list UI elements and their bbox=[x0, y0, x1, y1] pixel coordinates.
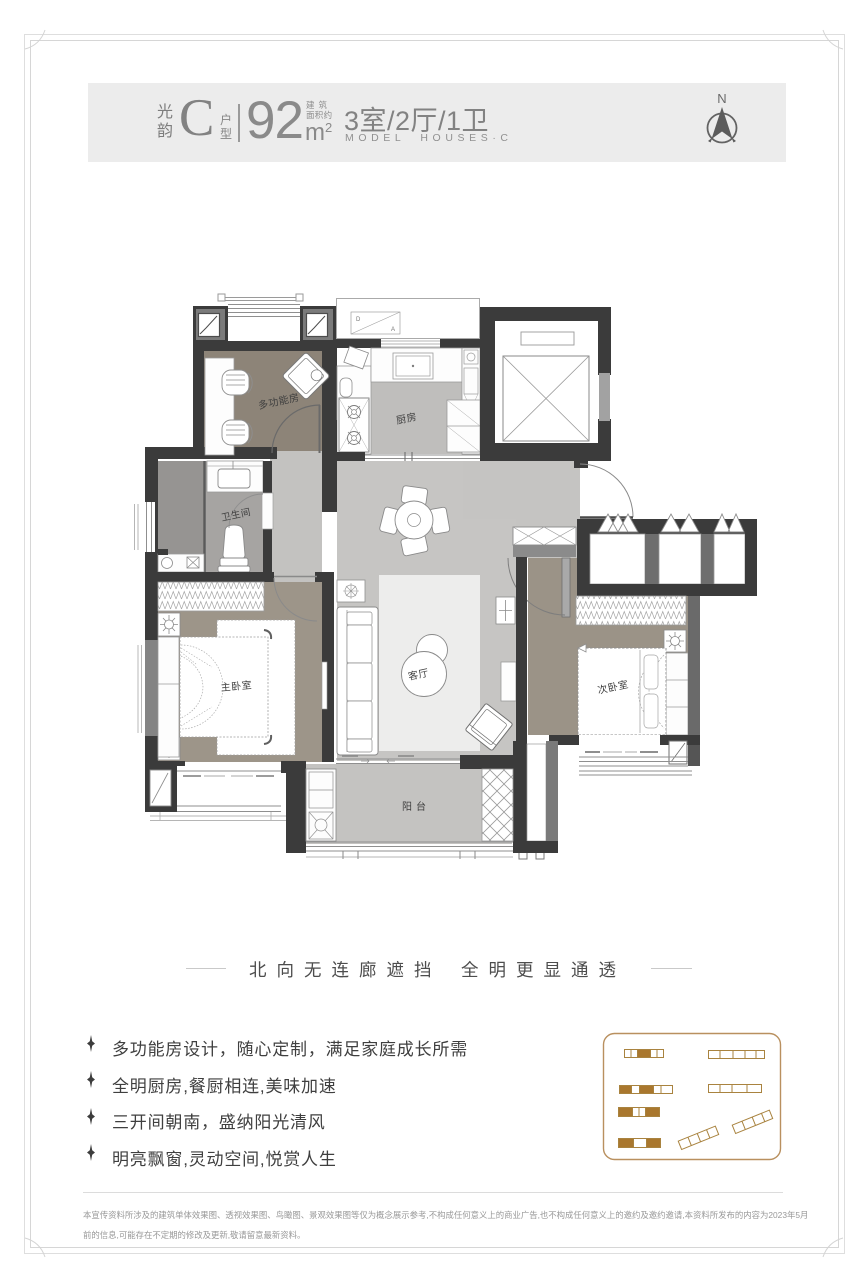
svg-text:A: A bbox=[391, 327, 395, 333]
svg-text:阳台: 阳台 bbox=[402, 800, 430, 813]
svg-text:D: D bbox=[356, 317, 361, 323]
